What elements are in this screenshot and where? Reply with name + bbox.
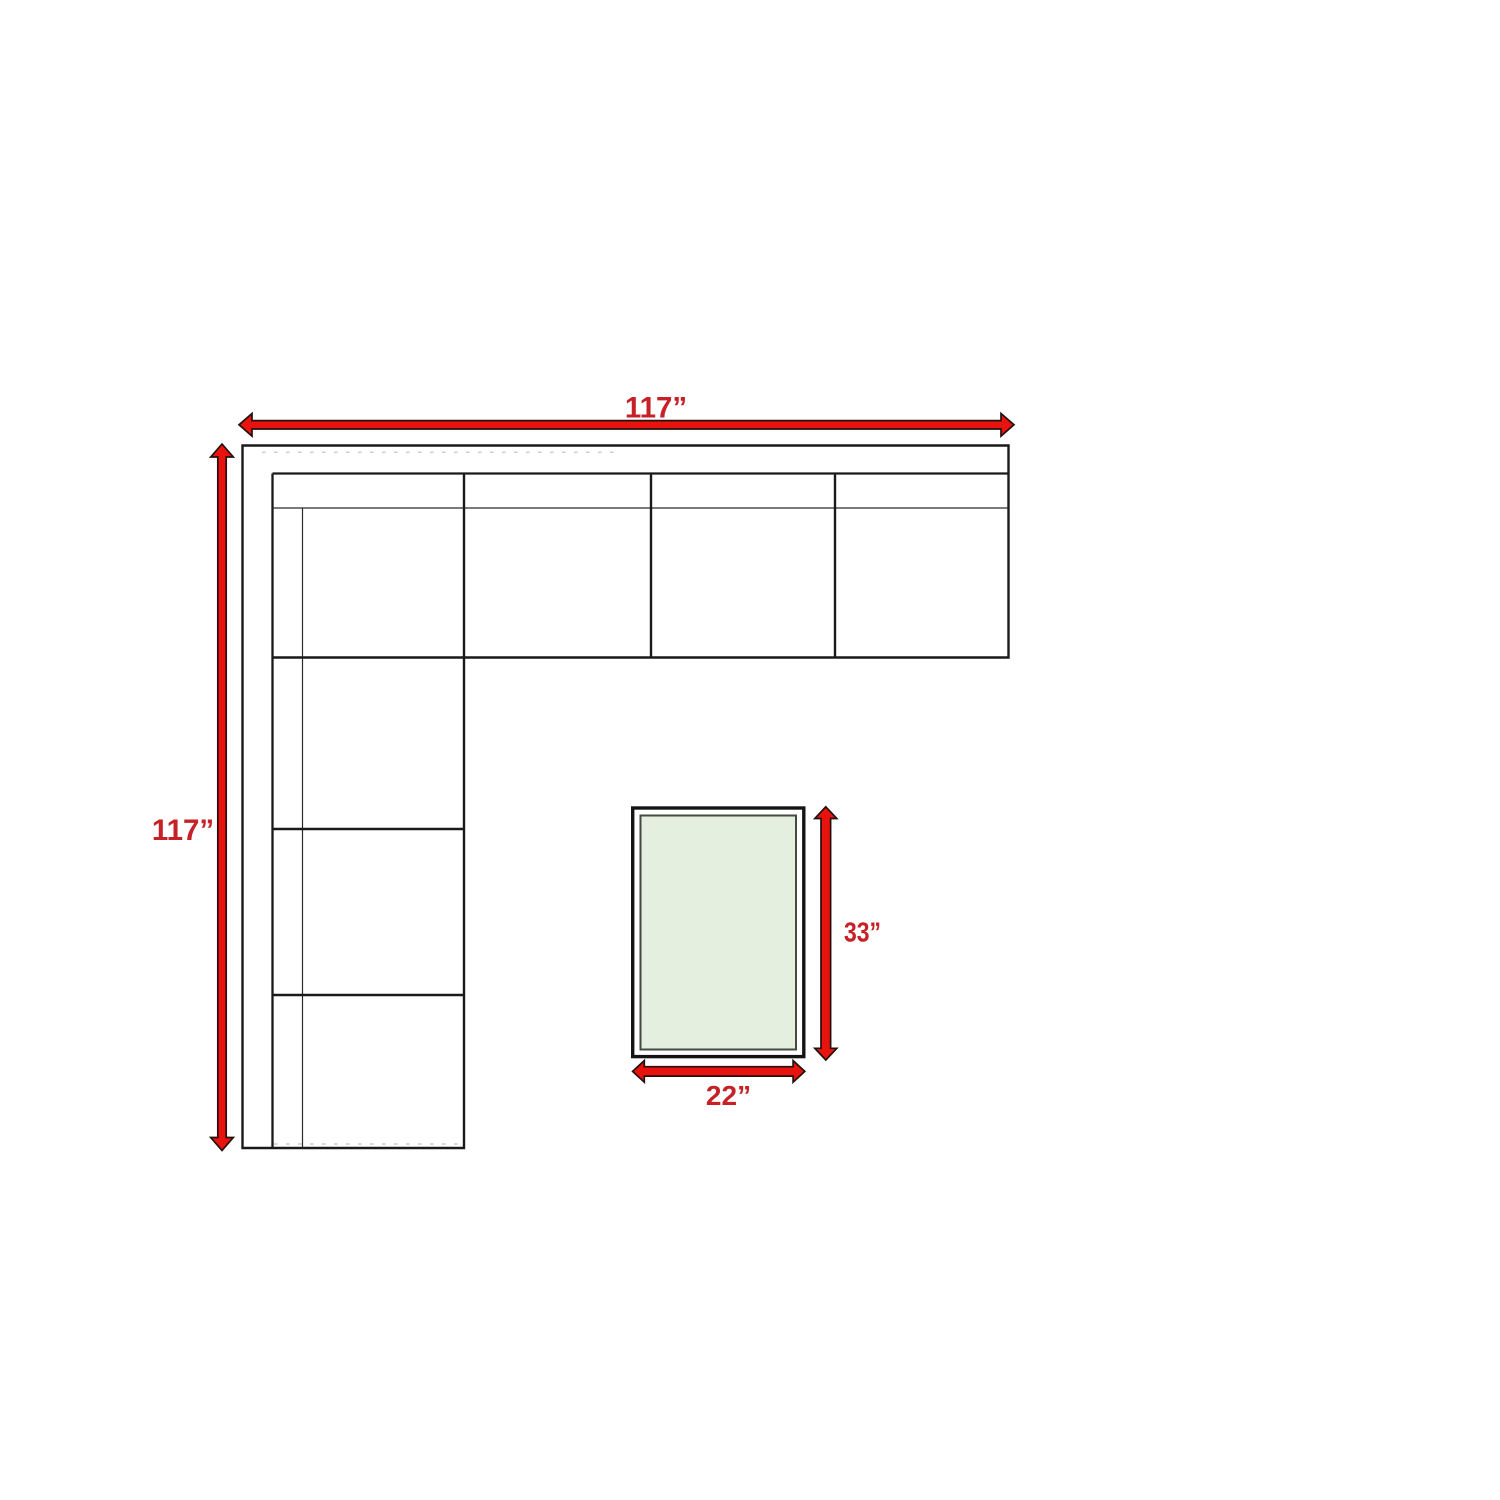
svg-text:117”: 117” bbox=[625, 392, 687, 425]
svg-text:33”: 33” bbox=[844, 917, 881, 948]
svg-text:22”: 22” bbox=[706, 1080, 751, 1111]
svg-text:117”: 117” bbox=[152, 814, 214, 847]
